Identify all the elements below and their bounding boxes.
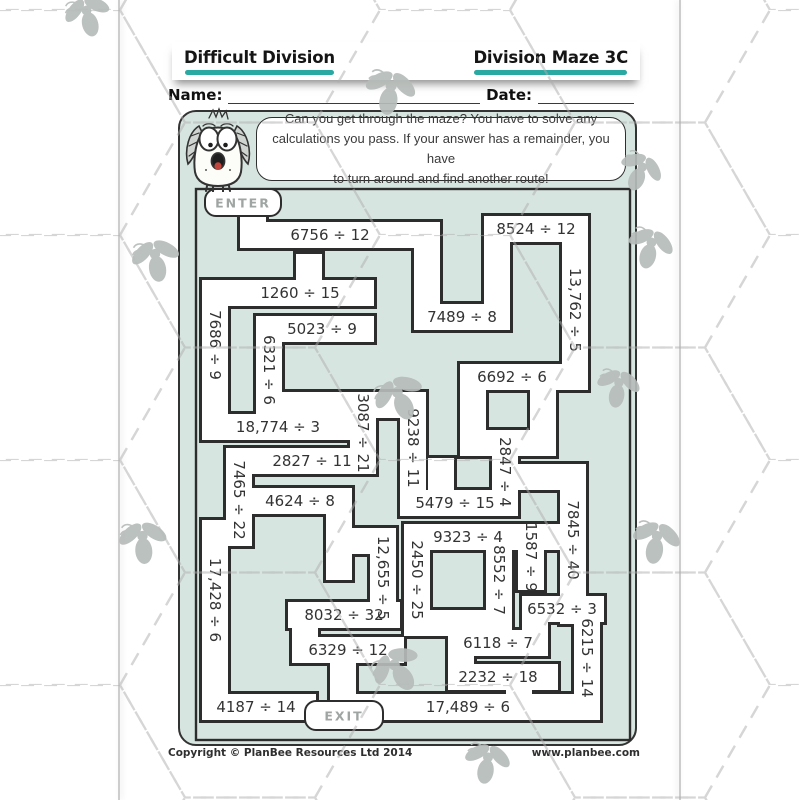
worksheet-preview: Difficult Division Division Maze 3C Name… — [0, 0, 800, 800]
title-underline-left — [185, 70, 334, 75]
page-edge-left — [118, 0, 120, 800]
date-label: Date: — [486, 86, 532, 104]
fly-icon — [114, 517, 172, 566]
instruction-line: calculations you pass. If your answer ha… — [257, 129, 625, 169]
title-left-wrap: Difficult Division — [184, 48, 335, 75]
worksheet-title: Difficult Division — [184, 48, 335, 67]
fly-icon — [58, 0, 119, 43]
page-edge-right — [679, 0, 681, 800]
worksheet-footer: Copyright © PlanBee Resources Ltd 2014 w… — [168, 747, 640, 759]
website-text: www.planbee.com — [532, 747, 640, 759]
instruction-box: Can you get through the maze? You have t… — [256, 117, 626, 181]
worksheet-header: Difficult Division Division Maze 3C — [172, 42, 640, 80]
instruction-line: to turn around and find another route! — [257, 169, 625, 189]
name-line — [228, 87, 480, 104]
worksheet-subtitle: Division Maze 3C — [473, 48, 628, 67]
title-underline-right — [474, 70, 627, 75]
instruction-line: Can you get through the maze? You have t… — [257, 109, 625, 129]
name-label: Name: — [168, 86, 222, 104]
date-line — [538, 87, 634, 104]
title-right-wrap: Division Maze 3C — [473, 48, 628, 75]
name-date-row: Name: Date: — [168, 84, 640, 104]
copyright-text: Copyright © PlanBee Resources Ltd 2014 — [168, 747, 412, 759]
worksheet-panel — [178, 110, 637, 746]
